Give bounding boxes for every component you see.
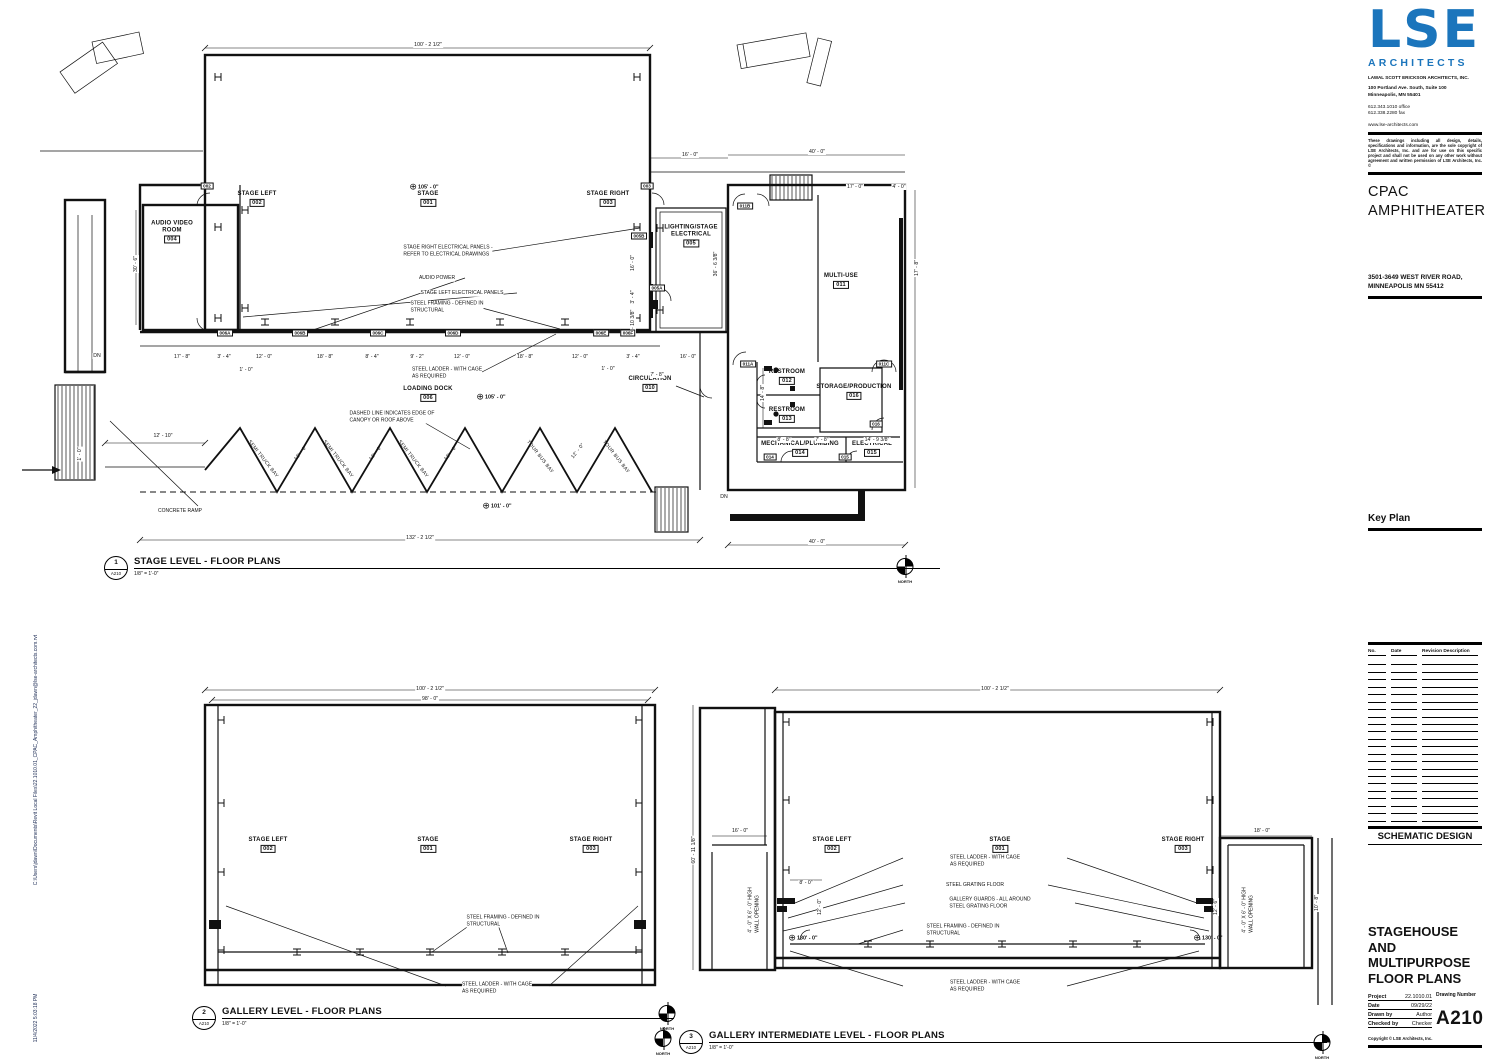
sheet-title-line2: MULTIPURPOSE bbox=[1368, 955, 1482, 971]
north-arrow-icon bbox=[655, 1030, 672, 1047]
room-stage-left: STAGE LEFT002 bbox=[238, 191, 277, 207]
sheet-title-line3: FLOOR PLANS bbox=[1368, 971, 1482, 987]
dim-annotation: DN bbox=[719, 494, 729, 500]
project-name-line1: CPAC bbox=[1368, 183, 1482, 201]
room-number-tag: 003 bbox=[1175, 845, 1191, 853]
date-label: Date bbox=[1368, 1003, 1380, 1009]
tag-annotation: 011B bbox=[737, 203, 753, 210]
dim-annotation: 18' - 8" bbox=[316, 354, 334, 360]
room-number-tag: 014 bbox=[792, 449, 808, 457]
p3-room-stage-left: STAGE LEFT002 bbox=[813, 837, 852, 853]
p3-note-wall-opening-right: 4' - 0" X 6' - 0" HIGHWALL OPENING bbox=[1242, 887, 1255, 932]
tag-annotation: 005B bbox=[631, 233, 647, 240]
spot-elevation-icon: ⊕ bbox=[1193, 934, 1201, 943]
room-number-tag: 015 bbox=[864, 449, 880, 457]
p3-north-left: NORTH bbox=[655, 1030, 672, 1056]
dim-annotation: 10' - 8" bbox=[1314, 894, 1320, 912]
phase-label: SCHEMATIC DESIGN bbox=[1368, 829, 1482, 844]
divider-bar bbox=[1368, 844, 1482, 846]
room-audio-video: AUDIO VIDEOROOM004 bbox=[151, 220, 193, 243]
tag-annotation: 014 bbox=[764, 454, 777, 461]
plan3-title-bubble: 3 A210 bbox=[679, 1030, 703, 1054]
divider-bar bbox=[1368, 172, 1482, 175]
dim-annotation: 12' - 0" bbox=[817, 898, 823, 916]
note-steel-framing: STEEL FRAMING - DEFINED INSTRUCTURAL bbox=[411, 301, 484, 314]
p3-elev-130-right: ⊕130' - 0" bbox=[1193, 934, 1222, 943]
room-storage-production: STORAGE/PRODUCTION016 bbox=[816, 384, 891, 400]
revision-table-header: No. Date Revision Description bbox=[1368, 649, 1482, 656]
dim-annotation: 40' - 0" bbox=[808, 539, 826, 545]
dim-annotation: 14' - 9 3/8" bbox=[864, 437, 891, 443]
lse-logo: LSE bbox=[1368, 6, 1482, 55]
dim-annotation: 8' - 0" bbox=[798, 880, 813, 886]
sheet-title-line1: STAGEHOUSE AND bbox=[1368, 924, 1482, 955]
room-lighting-stage-electrical: LIGHTING/STAGEELECTRICAL005 bbox=[664, 224, 717, 247]
plan2-scale: 1/8" = 1'-0" bbox=[222, 1019, 674, 1027]
tag-annotation: 011A bbox=[740, 361, 756, 368]
file-path-text: C:\Users\jdawn\Documents\Revit Local Fil… bbox=[33, 635, 39, 885]
room-number-tag: 002 bbox=[260, 845, 276, 853]
dim-17-0: 17' - 0" bbox=[846, 184, 864, 190]
copyright-disclaimer: These drawings including all design, det… bbox=[1368, 138, 1482, 169]
spot-elevation-icon: ⊕ bbox=[482, 502, 490, 511]
dim-annotation: 9' - 2" bbox=[409, 354, 424, 360]
dim-4-0: 4' - 0" bbox=[891, 184, 906, 190]
p2-room-stage-left: STAGE LEFT002 bbox=[249, 837, 288, 853]
firm-website[interactable]: www.lse-architects.com bbox=[1368, 123, 1482, 128]
firm-address-2: Minneapolis, MN 55401 bbox=[1368, 93, 1482, 99]
room-stage-right: STAGE RIGHT003 bbox=[587, 191, 630, 207]
dim-annotation: 8' - 4" bbox=[364, 354, 379, 360]
plan1-sheet-ref: A210 bbox=[105, 570, 127, 576]
dim-annotation: 36' - 6 3/8" bbox=[713, 251, 719, 278]
dim-annotation: 60' - 11 1/8" bbox=[691, 835, 697, 864]
room-number-tag: 002 bbox=[824, 845, 840, 853]
plan3-title: 3 A210 GALLERY INTERMEDIATE LEVEL - FLOO… bbox=[679, 1030, 1327, 1054]
column-symbols bbox=[215, 73, 1213, 955]
room-electrical: ELECTRICAL015 bbox=[852, 441, 892, 457]
room-number-tag: 004 bbox=[164, 235, 180, 243]
p3-note-wall-opening-left: 4' - 0" X 6' - 0" HIGHWALL OPENING bbox=[748, 887, 761, 932]
plan1-title: 1 A210 STAGE LEVEL - FLOOR PLANS 1/8" = … bbox=[104, 556, 940, 580]
room-restroom-013: RESTROOM013 bbox=[769, 407, 805, 423]
p2-dim-overall: 100' - 2 1/2" bbox=[415, 686, 445, 692]
drawing-number-label: Drawing Number bbox=[1436, 992, 1482, 998]
elev-dock-105: ⊕105' - 0" bbox=[476, 393, 505, 402]
room-multi-use: MULTI-USE011 bbox=[824, 273, 858, 289]
dim-bottom-overall: 132' - 2 1/2" bbox=[405, 535, 435, 541]
drawn-by-label: Drawn by bbox=[1368, 1012, 1392, 1018]
divider-bar bbox=[1368, 1045, 1482, 1048]
elev-dock-101: ⊕101' - 0" bbox=[482, 502, 511, 511]
plan3-title-text: GALLERY INTERMEDIATE LEVEL - FLOOR PLANS bbox=[709, 1030, 1327, 1043]
room-number-tag: 016 bbox=[846, 392, 862, 400]
dim-annotation: 1' - 0" bbox=[238, 367, 253, 373]
dim-annotation: 12' - 0" bbox=[255, 354, 273, 360]
room-stage: STAGE001 bbox=[417, 191, 438, 207]
plan1-title-bubble: 1 A210 bbox=[104, 556, 128, 580]
p2-room-stage-right: STAGE RIGHT003 bbox=[570, 837, 613, 853]
room-number-tag: 003 bbox=[583, 845, 599, 853]
dim-annotation: 8' - 8" bbox=[776, 437, 791, 443]
tag-annotation: 003 bbox=[641, 183, 654, 190]
p2-note-steel-ladder: STEEL LADDER - WITH CAGEAS REQUIRED bbox=[462, 982, 532, 995]
dim-annotation: 3' - 4" bbox=[216, 354, 231, 360]
dim-annotation: DN bbox=[92, 353, 102, 359]
p3-dim-overall: 100' - 2 1/2" bbox=[980, 686, 1010, 692]
tag-annotation: 006B bbox=[292, 330, 308, 337]
p2-dim-98: 98' - 0" bbox=[421, 696, 439, 702]
divider-bar bbox=[1368, 528, 1482, 531]
room-number-tag: 012 bbox=[779, 377, 795, 385]
elev-stage-105: ⊕105' - 0" bbox=[409, 183, 438, 192]
plan3-sheet-ref: A210 bbox=[680, 1044, 702, 1050]
tag-annotation: 011C bbox=[876, 361, 892, 368]
title-block: LSE ARCHITECTS LAWAL SCOTT ERICKSON ARCH… bbox=[1366, 0, 1484, 1060]
dim-annotation: 14' - 8" bbox=[760, 384, 766, 402]
tag-annotation: 015 bbox=[839, 454, 852, 461]
tag-annotation: 002 bbox=[201, 183, 214, 190]
plan2-sheet-ref: A210 bbox=[193, 1020, 215, 1026]
p2-room-stage: STAGE001 bbox=[417, 837, 438, 853]
p3-elev-130-left: ⊕130' - 0" bbox=[788, 934, 817, 943]
p2-note-steel-framing: STEEL FRAMING - DEFINED INSTRUCTURAL bbox=[467, 915, 540, 928]
room-number-tag: 010 bbox=[642, 384, 658, 392]
dim-annotation: 1' - 0" bbox=[600, 366, 615, 372]
dim-annotation: 18' - 0" bbox=[1253, 828, 1271, 834]
dim-annotation: 17' - 8" bbox=[173, 354, 191, 360]
p3-room-stage-right: STAGE RIGHT003 bbox=[1162, 837, 1205, 853]
dim-annotation: 7' - 8" bbox=[649, 372, 664, 378]
lse-logo-architects: ARCHITECTS bbox=[1368, 57, 1482, 69]
dim-annotation: 12' - 0" bbox=[571, 354, 589, 360]
dim-annotation: 17' - 8" bbox=[914, 259, 920, 277]
note-stage-right-panels: STAGE RIGHT ELECTRICAL PANELS -REFER TO … bbox=[403, 245, 492, 258]
room-number-tag: 005 bbox=[683, 239, 699, 247]
tag-annotation: 016 bbox=[870, 421, 883, 428]
drawing-number: A210 bbox=[1436, 1008, 1482, 1030]
dim-annotation: 30' - 6" bbox=[133, 255, 139, 273]
key-plan-label: Key Plan bbox=[1368, 513, 1482, 524]
tag-annotation: 006F bbox=[620, 330, 635, 337]
firm-fax: 612.338.2280 fax bbox=[1368, 111, 1482, 117]
room-restroom-012: RESTROOM012 bbox=[769, 369, 805, 385]
plan3-scale: 1/8" = 1'-0" bbox=[709, 1043, 1327, 1051]
room-number-tag: 011 bbox=[833, 281, 848, 289]
room-number-tag: 001 bbox=[420, 199, 436, 207]
dim-annotation: 3' - 4" bbox=[625, 354, 640, 360]
room-number-tag: 013 bbox=[779, 415, 795, 423]
room-number-tag: 002 bbox=[249, 199, 265, 207]
walls-medium bbox=[55, 175, 1332, 1005]
drawing-sheet: STAGE LEFT002STAGE001STAGE RIGHT003AUDIO… bbox=[0, 0, 1488, 1060]
p3-note-steel-ladder-bottom: STEEL LADDER - WITH CAGEAS REQUIRED bbox=[950, 980, 1020, 993]
drawn-by-value: Author bbox=[1416, 1012, 1432, 1018]
plan1-title-text: STAGE LEVEL - FLOOR PLANS bbox=[134, 556, 940, 569]
revision-col-date: Date bbox=[1391, 649, 1417, 656]
dim-top-overall: 100' - 2 1/2" bbox=[413, 42, 443, 48]
dim-annotation: 1' - 0" bbox=[77, 446, 83, 461]
note-concrete-ramp: CONCRETE RAMP bbox=[158, 508, 202, 515]
project-name-line2: AMPHITHEATER bbox=[1368, 202, 1482, 220]
spot-elevation-icon: ⊕ bbox=[476, 393, 484, 402]
dim-annotation: 16' - 0" bbox=[679, 354, 697, 360]
revision-col-description: Revision Description bbox=[1422, 649, 1478, 656]
plan2-detail-number: 2 bbox=[193, 1007, 215, 1020]
p3-note-gallery-guards: GALLERY GUARDS - ALL AROUNDSTEEL GRATING… bbox=[949, 897, 1030, 910]
plan-linework bbox=[0, 0, 1488, 1060]
room-number-tag: 001 bbox=[420, 845, 436, 853]
tag-annotation: 006C bbox=[370, 330, 386, 337]
divider-bar bbox=[1368, 642, 1482, 645]
plan3-detail-number: 3 bbox=[680, 1031, 702, 1044]
copyright-line: Copyright © LSE Architects, Inc. bbox=[1368, 1036, 1482, 1041]
note-steel-ladder: STEEL LADDER - WITH CAGEAS REQUIRED bbox=[412, 367, 482, 380]
project-address-2: MINNEAPOLIS MN 55412 bbox=[1368, 283, 1482, 292]
divider-bar bbox=[1368, 132, 1482, 135]
p3-note-steel-grating: STEEL GRATING FLOOR bbox=[946, 882, 1004, 889]
project-number: 22.1010.01 bbox=[1405, 994, 1432, 1000]
tag-annotation: 006A bbox=[217, 330, 233, 337]
project-address-1: 3501-3649 WEST RIVER ROAD, bbox=[1368, 274, 1482, 283]
plan2-title-text: GALLERY LEVEL - FLOOR PLANS bbox=[222, 1006, 674, 1019]
tag-annotation: 005A bbox=[649, 285, 665, 292]
dim-annotation: 7' - 8" bbox=[814, 437, 829, 443]
project-info-table: Project22.1010.01 Date09/29/22 Drawn byA… bbox=[1368, 992, 1482, 1030]
dim-annotation: 18' - 8" bbox=[516, 354, 534, 360]
dimension-lines bbox=[102, 45, 1312, 970]
spot-elevation-icon: ⊕ bbox=[788, 934, 796, 943]
firm-name: LAWAL SCOTT ERICKSON ARCHITECTS, INC. bbox=[1368, 75, 1482, 80]
note-stage-left-panels: STAGE LEFT ELECTRICAL PANELS bbox=[421, 290, 504, 297]
revision-col-no: No. bbox=[1368, 649, 1386, 656]
note-canopy-dashed: DASHED LINE INDICATES EDGE OFCANOPY OR R… bbox=[350, 411, 435, 424]
dim-annotation: 12' - 6" bbox=[1213, 898, 1219, 916]
dim-40-0-top: 40' - 0" bbox=[808, 149, 826, 155]
room-number-tag: 001 bbox=[992, 845, 1008, 853]
room-number-tag: 006 bbox=[420, 394, 436, 402]
plan2-title-bubble: 2 A210 bbox=[192, 1006, 216, 1030]
checked-by-value: Checker bbox=[1412, 1021, 1432, 1027]
room-loading-dock: LOADING DOCK006 bbox=[403, 386, 452, 402]
room-number-tag: 003 bbox=[600, 199, 616, 207]
p3-room-stage: STAGE001 bbox=[989, 837, 1010, 853]
checked-by-label: Checked by bbox=[1368, 1021, 1398, 1027]
tag-annotation: 006E bbox=[593, 330, 609, 337]
plan2-title: 2 A210 GALLERY LEVEL - FLOOR PLANS 1/8" … bbox=[192, 1006, 674, 1030]
plot-timestamp: 11/4/2022 5:03:18 PM bbox=[33, 994, 39, 1043]
plan1-scale: 1/8" = 1'-0" bbox=[134, 569, 940, 577]
dim-annotation: 16' - 0" bbox=[731, 828, 749, 834]
tag-annotation: 006D bbox=[445, 330, 461, 337]
p3-note-steel-framing: STEEL FRAMING - DEFINED INSTRUCTURAL bbox=[927, 924, 1000, 937]
revision-table-rows bbox=[1368, 658, 1482, 822]
date-value: 09/29/22 bbox=[1411, 1003, 1432, 1009]
p3-note-steel-ladder-top: STEEL LADDER - WITH CAGEAS REQUIRED bbox=[950, 855, 1020, 868]
divider-bar bbox=[1368, 296, 1482, 299]
project-label: Project bbox=[1368, 994, 1386, 1000]
dim-annotation: 3' - 4" bbox=[630, 289, 636, 304]
dim-16-0: 16' - 0" bbox=[681, 152, 699, 158]
room-circulation: CIRCULATION010 bbox=[628, 376, 671, 392]
note-audio-power: AUDIO POWER bbox=[419, 275, 455, 282]
dim-annotation: 16' - 0" bbox=[630, 254, 636, 272]
spot-elevation-icon: ⊕ bbox=[409, 183, 417, 192]
dim-annotation: 12' - 10" bbox=[153, 433, 174, 439]
dim-annotation: 12' - 0" bbox=[453, 354, 471, 360]
plan1-detail-number: 1 bbox=[105, 557, 127, 570]
